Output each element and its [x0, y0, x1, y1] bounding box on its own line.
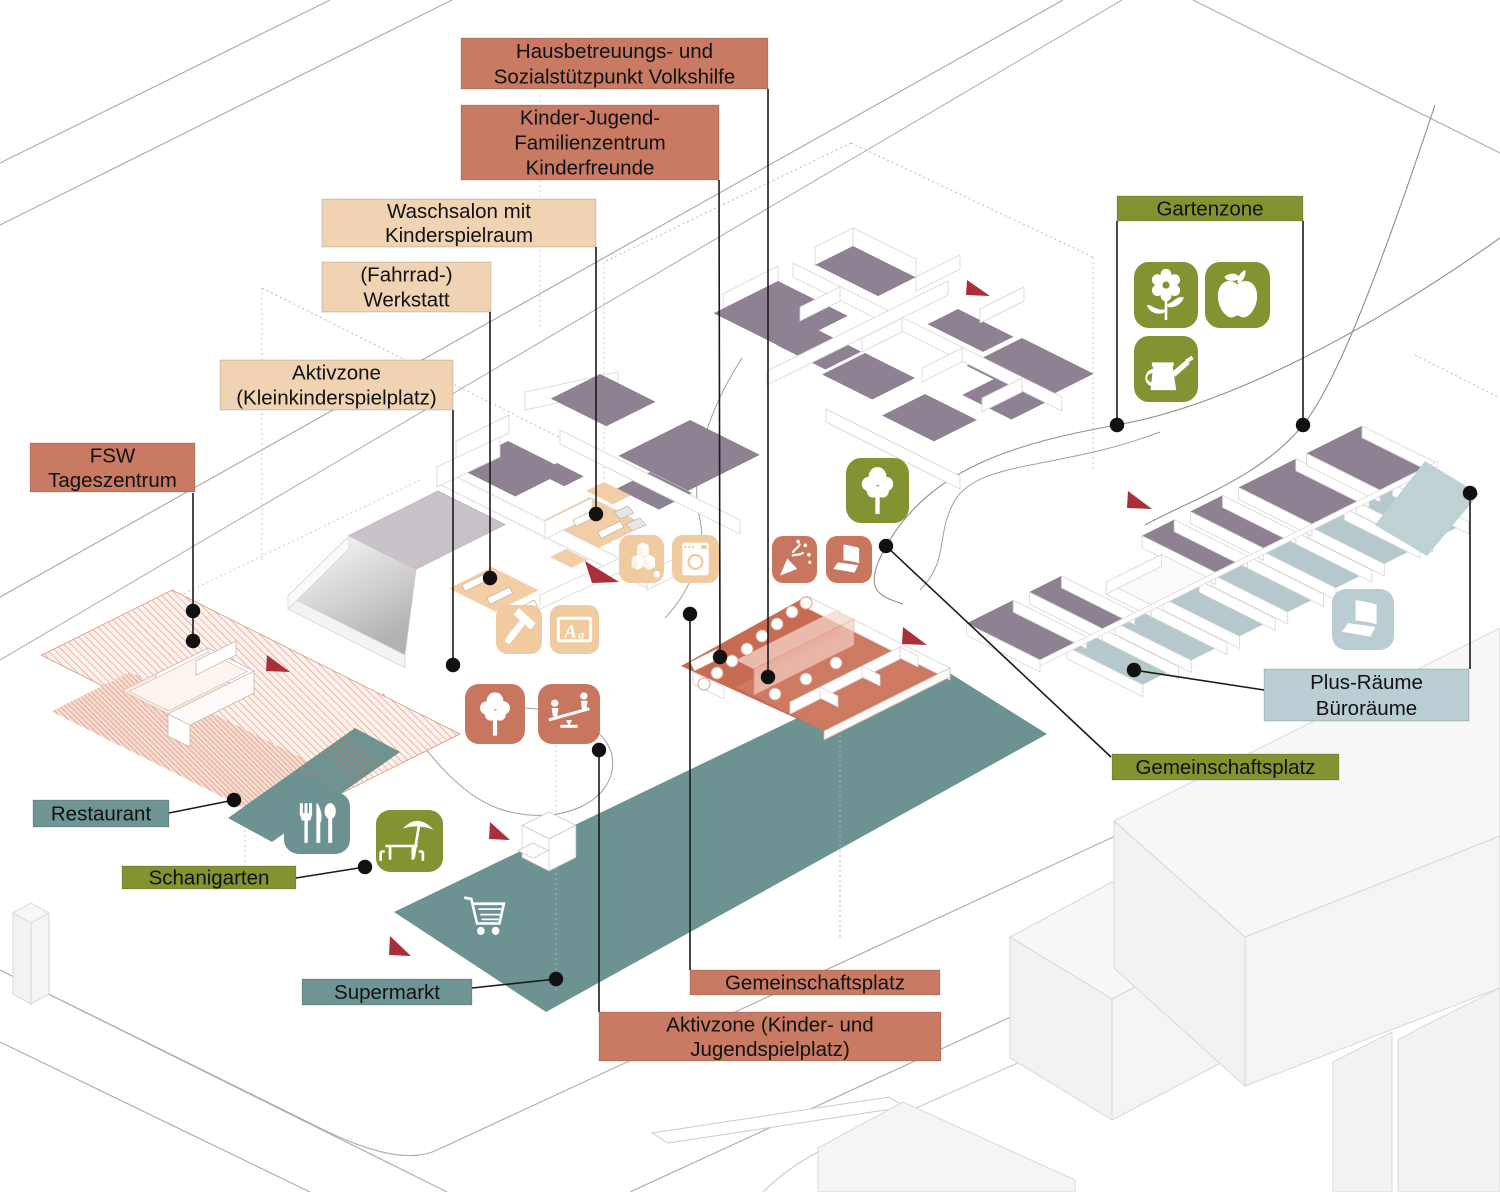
svg-text:a: a: [578, 628, 584, 641]
svg-text:Schanigarten: Schanigarten: [149, 867, 270, 890]
svg-text:Gartenzone: Gartenzone: [1156, 198, 1263, 221]
svg-text:Aktivzone (Kinder- und: Aktivzone (Kinder- und: [666, 1013, 873, 1036]
svg-text:Aktivzone: Aktivzone: [292, 362, 381, 385]
svg-text:Hausbetreuungs- und: Hausbetreuungs- und: [516, 40, 713, 63]
svg-text:Plus-Räume: Plus-Räume: [1310, 671, 1423, 694]
svg-text:Supermarkt: Supermarkt: [334, 981, 440, 1004]
svg-text:(Kleinkinderspielplatz): (Kleinkinderspielplatz): [236, 387, 437, 410]
svg-text:(Fahrrad-): (Fahrrad-): [360, 264, 452, 287]
svg-text:Gemeinschaftsplatz: Gemeinschaftsplatz: [1135, 756, 1315, 779]
svg-text:Sozialstützpunkt Volkshilfe: Sozialstützpunkt Volkshilfe: [494, 65, 736, 88]
svg-text:Werkstatt: Werkstatt: [363, 289, 449, 312]
svg-text:Gemeinschaftsplatz: Gemeinschaftsplatz: [725, 972, 905, 995]
svg-text:Restaurant: Restaurant: [51, 803, 152, 826]
svg-text:Kinderfreunde: Kinderfreunde: [526, 157, 655, 180]
svg-text:FSW: FSW: [90, 444, 136, 467]
svg-text:A: A: [563, 621, 576, 642]
svg-text:Waschsalon mit: Waschsalon mit: [387, 200, 531, 223]
svg-text:Büroräume: Büroräume: [1316, 697, 1417, 720]
svg-text:Kinder-Jugend-: Kinder-Jugend-: [520, 107, 660, 130]
svg-text:Tageszentrum: Tageszentrum: [48, 469, 177, 492]
svg-text:Jugendspielplatz): Jugendspielplatz): [690, 1038, 850, 1061]
svg-text:Kinderspielraum: Kinderspielraum: [385, 224, 533, 247]
svg-text:Familienzentrum: Familienzentrum: [514, 132, 666, 155]
